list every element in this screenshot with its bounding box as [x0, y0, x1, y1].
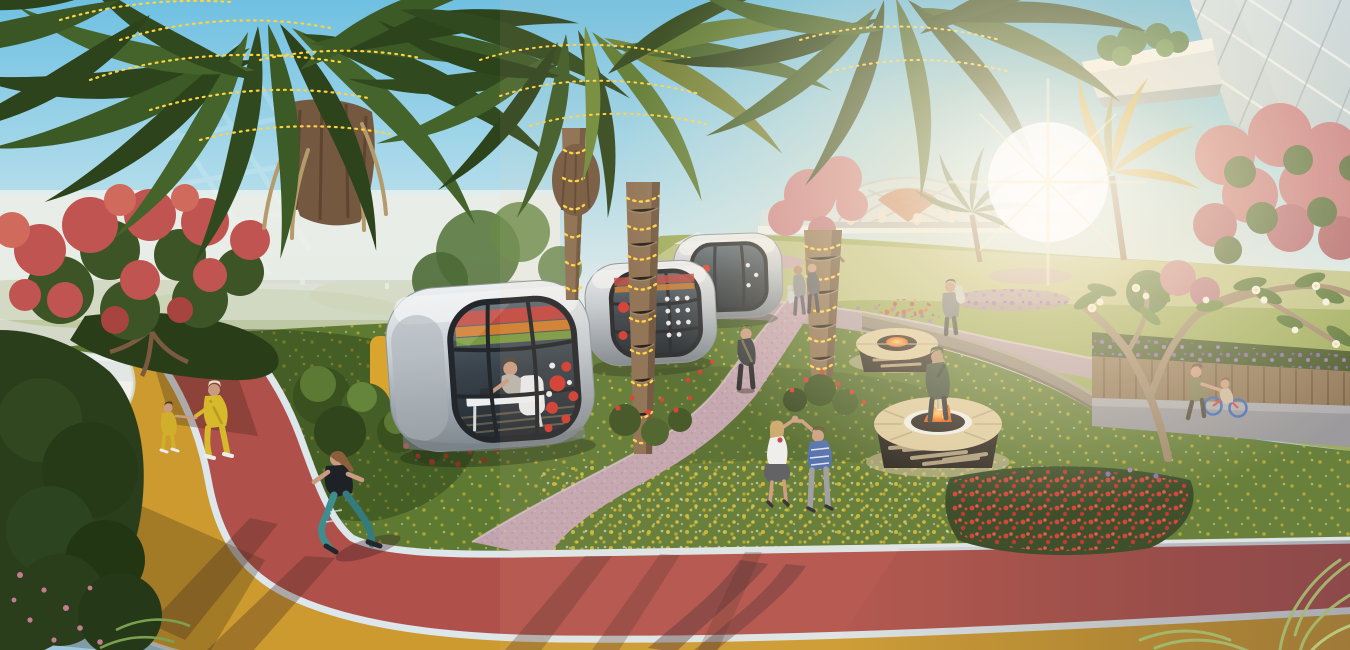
- scene-canvas: [0, 0, 1350, 650]
- scene-root: [0, 0, 1350, 650]
- rooftop-park-rendering: [0, 0, 1350, 650]
- warm-haze: [500, 0, 1350, 650]
